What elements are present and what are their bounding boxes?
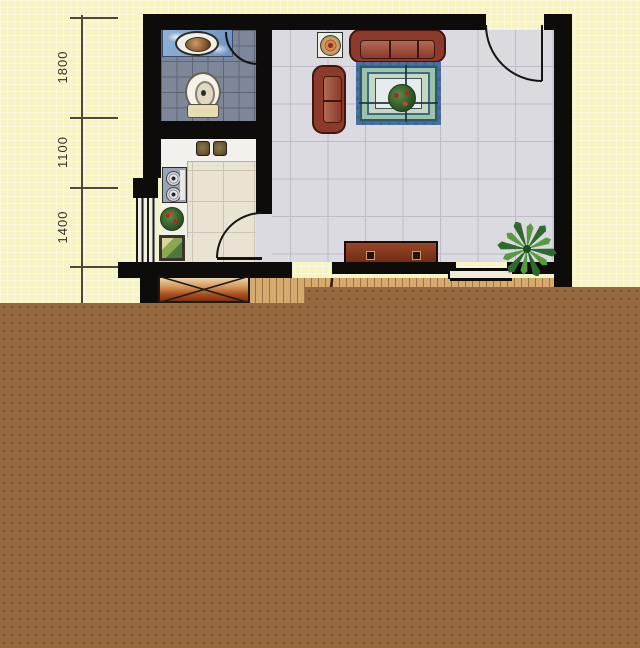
sofa-seat xyxy=(360,40,435,59)
dimension-tick xyxy=(70,187,118,189)
stove-burner xyxy=(166,171,181,186)
three-seat-sofa xyxy=(349,29,446,63)
area-rug xyxy=(356,62,441,125)
dimension-tick xyxy=(70,17,118,19)
toilet-tank xyxy=(187,104,219,118)
kitchen-board-panel xyxy=(159,235,185,261)
dimension-label-1800: 1800 xyxy=(56,37,70,97)
kitchen-louver-window xyxy=(136,198,158,262)
living-room-floor xyxy=(256,214,272,262)
sofa-seam xyxy=(389,40,391,59)
dimension-label-1400: 1400 xyxy=(56,197,70,257)
wall-left-pier xyxy=(133,178,158,198)
wall-left-upper xyxy=(143,14,161,178)
stove xyxy=(162,167,187,203)
bathroom-sink-counter xyxy=(162,28,233,57)
stove-knob-strip xyxy=(180,170,185,200)
cabinet-knob xyxy=(366,251,375,260)
sofa-seam xyxy=(417,40,419,59)
brown-obstruction xyxy=(0,303,640,648)
stove-burner xyxy=(166,187,181,202)
dimension-tick xyxy=(70,266,118,268)
wall-bottom-a xyxy=(332,262,450,274)
wall-kitchen-living xyxy=(256,139,272,214)
sink-bowl xyxy=(213,141,227,156)
kitchen-double-sink xyxy=(196,140,229,157)
service-shaft xyxy=(158,276,250,303)
sofa-seam xyxy=(323,100,342,102)
cabinet-knob xyxy=(412,251,421,260)
wall-top xyxy=(143,14,486,30)
dimension-label-1100: 1100 xyxy=(56,122,70,182)
two-seat-sofa xyxy=(312,65,346,134)
wall-bottom-left xyxy=(118,262,292,278)
wall-bottom-left-pier xyxy=(140,278,158,303)
toilet-drain xyxy=(201,90,206,96)
kitchen-door-panel xyxy=(217,257,262,260)
sink-bowl xyxy=(196,141,210,156)
floor-plan-scan: 1800 1100 1400 xyxy=(0,0,640,648)
wall-bathroom-living xyxy=(256,30,272,121)
compass-ornament xyxy=(320,35,341,56)
dimension-tick xyxy=(70,117,118,119)
vegetable-basket xyxy=(160,207,184,231)
bathroom-sink-bowl xyxy=(185,37,211,52)
rug-plant-centerpiece xyxy=(388,84,416,112)
bathroom-sink xyxy=(175,31,219,56)
entrance-door-panel xyxy=(541,25,543,81)
dimension-line xyxy=(81,15,83,303)
palm-plant xyxy=(495,222,559,276)
wall-bathroom-kitchen xyxy=(143,121,272,139)
side-table xyxy=(317,32,343,58)
